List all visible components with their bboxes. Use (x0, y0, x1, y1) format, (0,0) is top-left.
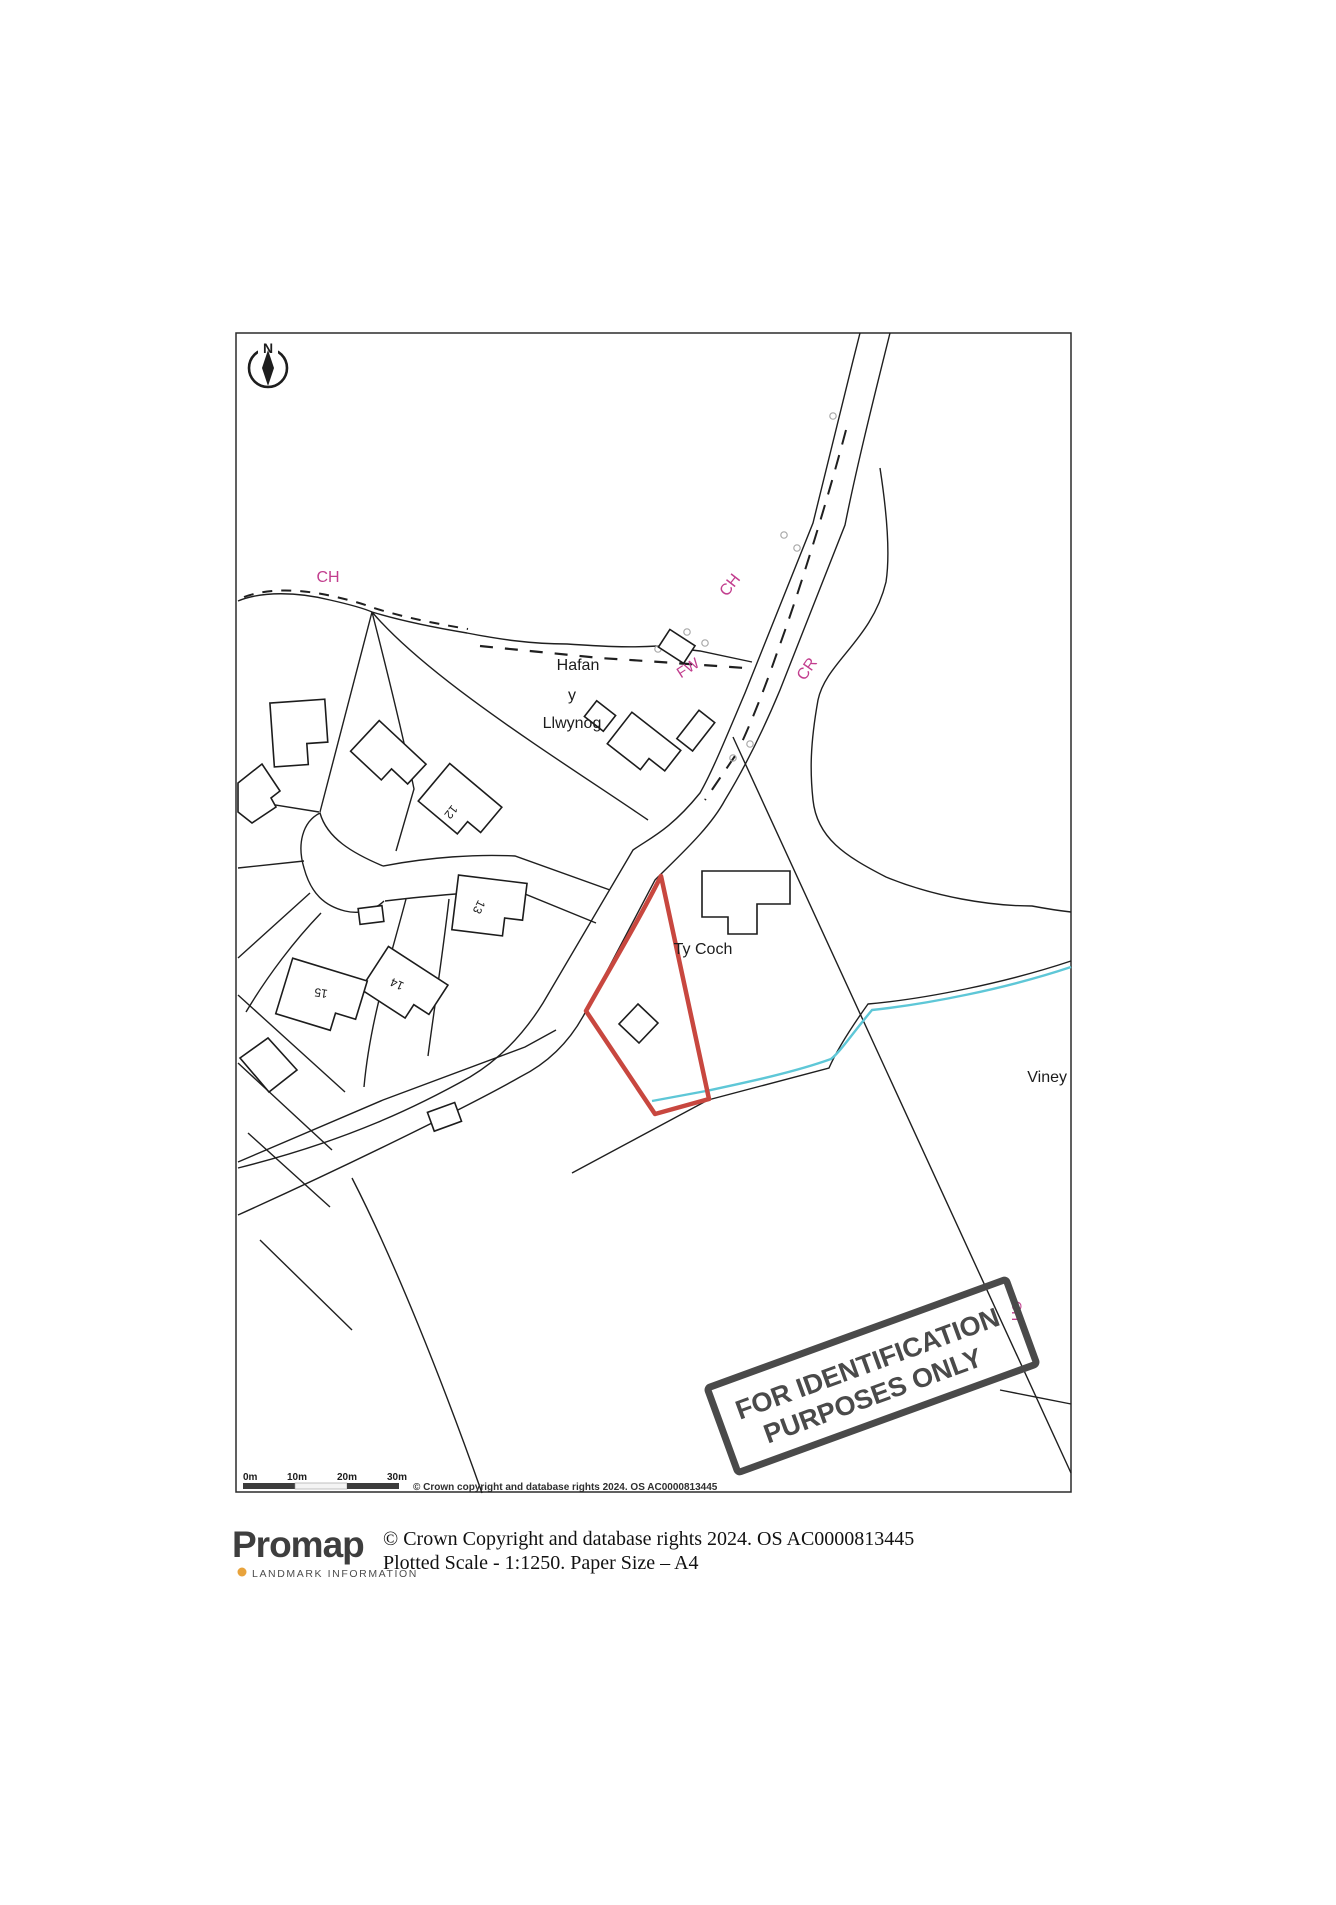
scale-10m: 10m (287, 1472, 307, 1483)
label-plot-15: 15 (313, 985, 328, 1001)
promap-logo: Promap (232, 1524, 364, 1565)
label-ch-top: CH (316, 569, 339, 586)
footer-copyright-line: © Crown Copyright and database rights 20… (383, 1528, 914, 1550)
label-viney: Viney (1027, 1069, 1067, 1086)
scale-0m: 0m (243, 1472, 258, 1483)
site-plan-canvas: N CH CH CR FW CH Hafan y Llwynog Ty Coch… (0, 0, 1336, 1905)
landmark-dot-icon (238, 1568, 247, 1577)
compass-n: N (263, 340, 273, 356)
scale-30m: 30m (387, 1472, 407, 1483)
label-hafan-3: Llwynog (543, 715, 602, 732)
label-hafan-2: y (568, 687, 576, 704)
label-ty-coch: Ty Coch (674, 941, 733, 958)
label-hafan-1: Hafan (557, 657, 600, 674)
scale-20m: 20m (337, 1472, 357, 1483)
map-copyright: © Crown copyright and database rights 20… (413, 1482, 718, 1493)
footer-scale-line: Plotted Scale - 1:1250. Paper Size – A4 (383, 1552, 699, 1574)
footer: Promap LANDMARK INFORMATION © Crown Copy… (232, 1524, 914, 1580)
map-document-page: N CH CH CR FW CH Hafan y Llwynog Ty Coch… (0, 0, 1336, 1905)
